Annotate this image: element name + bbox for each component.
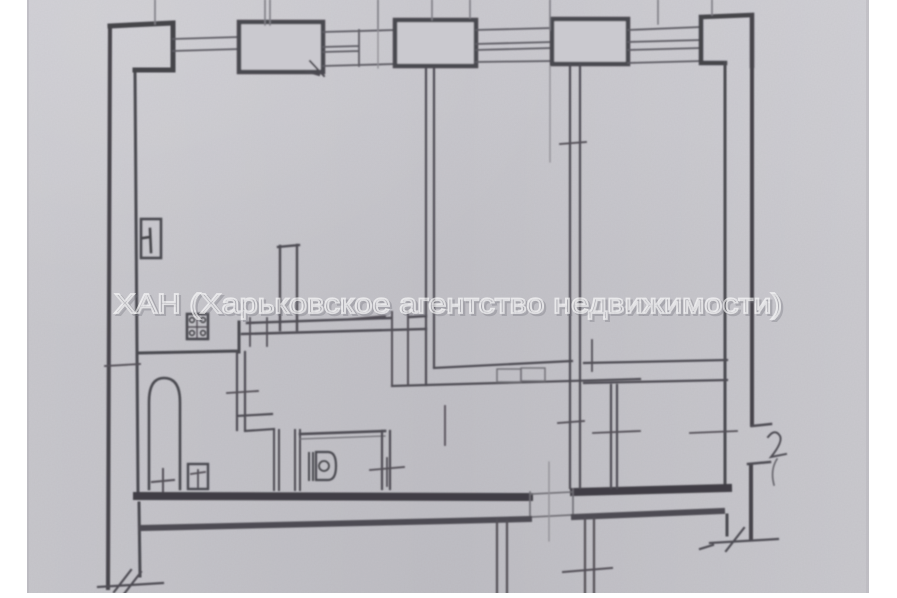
svg-text:ХАН (Харьковское агентство нед: ХАН (Харьковское агентство недвижимости)	[114, 288, 782, 319]
